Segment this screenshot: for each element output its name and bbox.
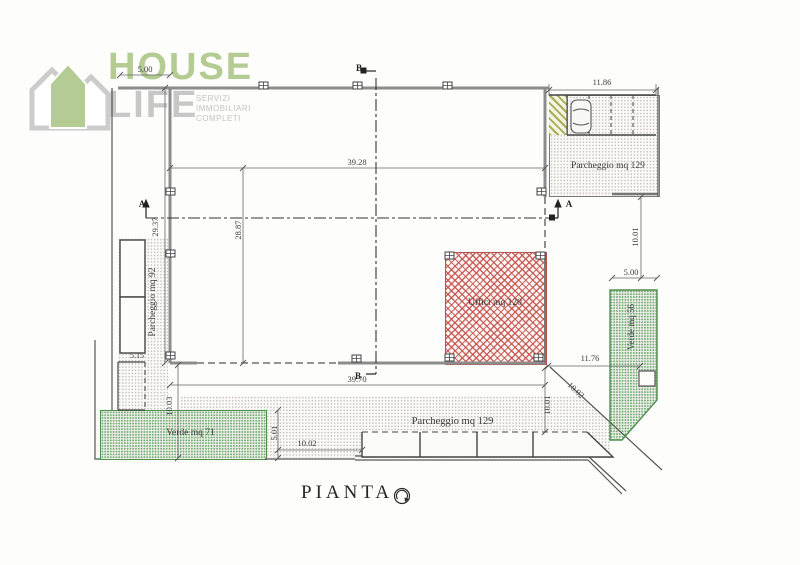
dim-verde-left-height: 5.01 (268, 410, 280, 456)
ramp-hatch-area (549, 95, 568, 135)
section-a-right: A (562, 198, 576, 210)
floor-plan-page: HOUSE LIFE SERVIZI IMMOBILIARI COMPLETI (0, 0, 800, 565)
tagline-line: COMPLETI (196, 114, 251, 124)
dim-hall-depth-inner: 28.87 (232, 207, 244, 253)
agency-logo: HOUSE LIFE SERVIZI IMMOBILIARI COMPLETI (28, 46, 278, 136)
dim-bottom-right-height: 10.01 (541, 382, 553, 428)
parking-left-area (118, 238, 168, 410)
logo-tagline: SERVIZI IMMOBILIARI COMPLETI (196, 94, 251, 124)
green-left-label: Verde mq 71 (128, 427, 253, 439)
dim-top-left: 5.00 (116, 63, 174, 75)
logo-life-text: LIFE (108, 84, 198, 127)
north-indicator-icon (392, 486, 412, 506)
green-right-label: Verde mq 56 (625, 274, 637, 380)
offices-label: Uffici mq 120 (445, 297, 545, 309)
dim-hall-depth-left: 29.37 (149, 204, 161, 250)
dim-parking-top-width: 11.86 (562, 76, 642, 88)
section-b-bottom: B (352, 370, 364, 382)
dim-hall-width-top: 39.28 (297, 156, 417, 168)
parking-bottom-label: Parcheggio mq 129 (380, 416, 525, 428)
parking-left-label: Parcheggio mq 92 (147, 250, 159, 354)
houses-logo-icon (28, 48, 112, 132)
dim-verde-left-depth: 10.03 (163, 383, 175, 429)
tagline-line: SERVIZI (196, 94, 251, 104)
dim-bottom-right-width: 11.76 (550, 352, 630, 364)
section-a-left: A (135, 198, 149, 210)
dim-bottom-left-width: 10.02 (277, 437, 337, 449)
plan-title: PIANTA (301, 482, 393, 504)
tagline-line: IMMOBILIARI (196, 104, 251, 114)
dim-right-upper-height: 10.01 (629, 214, 641, 260)
parking-top-label: Parcheggio mq 129 (548, 160, 668, 172)
section-b-top: B (353, 62, 365, 74)
